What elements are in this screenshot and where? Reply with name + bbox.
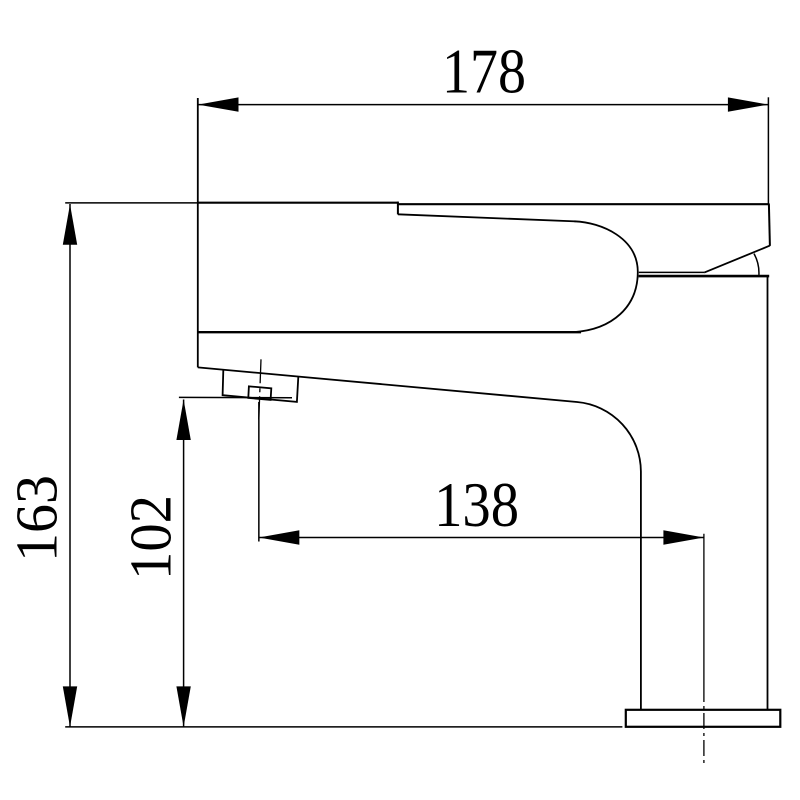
svg-text:138: 138	[434, 470, 519, 540]
svg-text:102: 102	[118, 495, 184, 580]
svg-text:178: 178	[442, 37, 526, 107]
svg-text:163: 163	[4, 475, 70, 562]
